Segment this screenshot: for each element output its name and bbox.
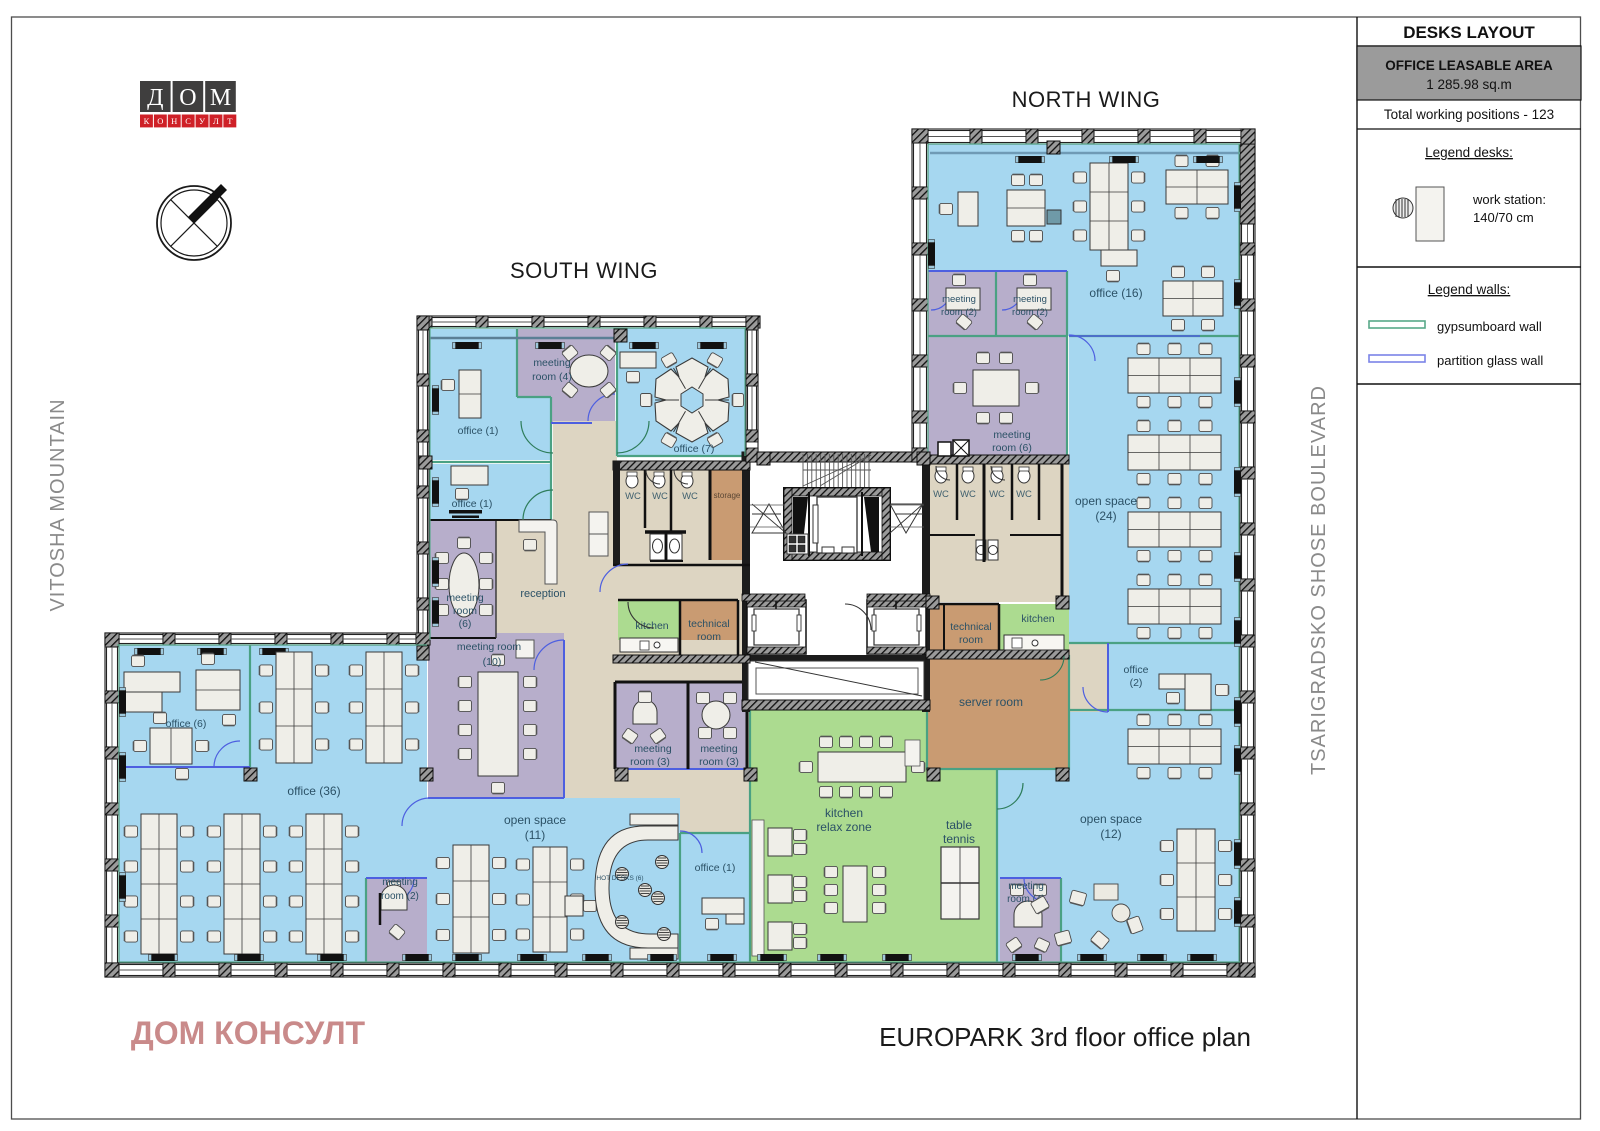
svg-text:140/70 cm: 140/70 cm [1473, 210, 1534, 225]
svg-text:meeting: meeting [634, 743, 672, 755]
svg-text:SOUTH WING: SOUTH WING [510, 258, 658, 283]
svg-text:EUROPARK 3rd floor office plan: EUROPARK 3rd floor office plan [879, 1022, 1251, 1052]
svg-text:ДОМ КОНСУЛТ: ДОМ КОНСУЛТ [131, 1015, 366, 1051]
svg-text:meeting: meeting [382, 877, 418, 888]
svg-text:WC: WC [1016, 489, 1032, 500]
svg-text:gypsumboard wall: gypsumboard wall [1437, 319, 1542, 334]
svg-text:office (1): office (1) [695, 862, 736, 874]
svg-text:kitchen: kitchen [825, 806, 863, 820]
svg-text:(11): (11) [525, 828, 545, 842]
svg-text:С: С [185, 116, 191, 126]
svg-text:WC: WC [682, 491, 698, 502]
svg-text:storage: storage [714, 491, 741, 500]
svg-text:WC: WC [989, 489, 1005, 500]
svg-text:O: O [179, 85, 196, 111]
svg-text:meeting: meeting [1013, 294, 1047, 305]
svg-text:Total working positions - 123: Total working positions - 123 [1384, 107, 1554, 122]
svg-text:office (6): office (6) [166, 718, 207, 730]
svg-text:(6): (6) [459, 618, 472, 630]
svg-text:Legend walls:: Legend walls: [1428, 282, 1511, 297]
svg-text:office (1): office (1) [458, 425, 499, 437]
svg-text:К: К [144, 116, 150, 126]
svg-text:meeting: meeting [700, 743, 738, 755]
svg-text:office (7): office (7) [674, 443, 715, 455]
svg-text:meeting: meeting [1008, 881, 1044, 892]
svg-text:work station:: work station: [1472, 192, 1546, 207]
svg-text:technical: technical [688, 618, 729, 630]
svg-text:(24): (24) [1095, 509, 1116, 523]
svg-text:office: office [1124, 664, 1149, 676]
svg-text:room (2): room (2) [381, 891, 419, 902]
svg-text:server room: server room [959, 695, 1023, 709]
svg-text:OFFICE LEASABLE AREA: OFFICE LEASABLE AREA [1385, 58, 1553, 73]
svg-text:M: M [210, 85, 231, 111]
svg-text:office (16): office (16) [1089, 286, 1142, 300]
svg-text:room (2): room (2) [1012, 307, 1048, 318]
svg-text:open space: open space [504, 813, 566, 827]
svg-text:table: table [946, 818, 972, 832]
svg-text:VITOSHA MOUNTAIN: VITOSHA MOUNTAIN [47, 398, 69, 611]
svg-text:Н: Н [171, 116, 177, 126]
svg-text:meeting: meeting [446, 592, 484, 604]
svg-text:WC: WC [960, 489, 976, 500]
svg-text:NORTH WING: NORTH WING [1012, 87, 1161, 112]
svg-text:kitchen: kitchen [1021, 613, 1054, 625]
svg-text:(12): (12) [1100, 827, 1121, 841]
svg-text:HOT DESKS (6): HOT DESKS (6) [596, 875, 643, 882]
svg-text:(2): (2) [1130, 677, 1143, 689]
svg-text:reception: reception [520, 588, 565, 600]
svg-text:У: У [199, 116, 206, 126]
svg-text:room: room [959, 634, 983, 646]
svg-text:meeting: meeting [942, 294, 976, 305]
svg-text:Т: Т [227, 116, 233, 126]
svg-text:room (6): room (6) [992, 442, 1032, 454]
svg-text:О: О [157, 116, 163, 126]
svg-text:WC: WC [652, 491, 668, 502]
svg-text:WC: WC [625, 491, 641, 502]
svg-text:open space: open space [1075, 494, 1137, 508]
svg-text:office (1): office (1) [452, 498, 493, 510]
svg-text:TSARIGRADSKO SHOSE BOULEVARD: TSARIGRADSKO SHOSE BOULEVARD [1308, 385, 1330, 775]
svg-text:DESKS LAYOUT: DESKS LAYOUT [1403, 23, 1535, 42]
svg-text:meeting room: meeting room [457, 641, 521, 653]
svg-text:relax zone: relax zone [816, 820, 872, 834]
svg-text:partition glass wall: partition glass wall [1437, 353, 1543, 368]
svg-text:tennis: tennis [943, 832, 975, 846]
svg-text:room (3): room (3) [630, 756, 670, 768]
svg-text:meeting: meeting [533, 357, 571, 369]
svg-text:Л: Л [213, 116, 219, 126]
svg-text:room: room [697, 631, 721, 643]
svg-text:Д: Д [147, 85, 163, 111]
svg-text:meeting: meeting [993, 429, 1031, 441]
svg-text:(10): (10) [483, 656, 502, 668]
svg-text:kitchen: kitchen [635, 620, 668, 632]
svg-text:WC: WC [933, 489, 949, 500]
svg-text:office (36): office (36) [287, 784, 340, 798]
svg-text:Legend desks:: Legend desks: [1425, 145, 1513, 160]
svg-text:technical: technical [950, 621, 991, 633]
svg-text:room: room [453, 605, 477, 617]
svg-text:room (2): room (2) [941, 307, 977, 318]
svg-text:room (4): room (4) [532, 371, 572, 383]
svg-text:1 285.98 sq.m: 1 285.98 sq.m [1426, 77, 1512, 92]
svg-text:open space: open space [1080, 812, 1142, 826]
svg-text:room (3): room (3) [699, 756, 739, 768]
